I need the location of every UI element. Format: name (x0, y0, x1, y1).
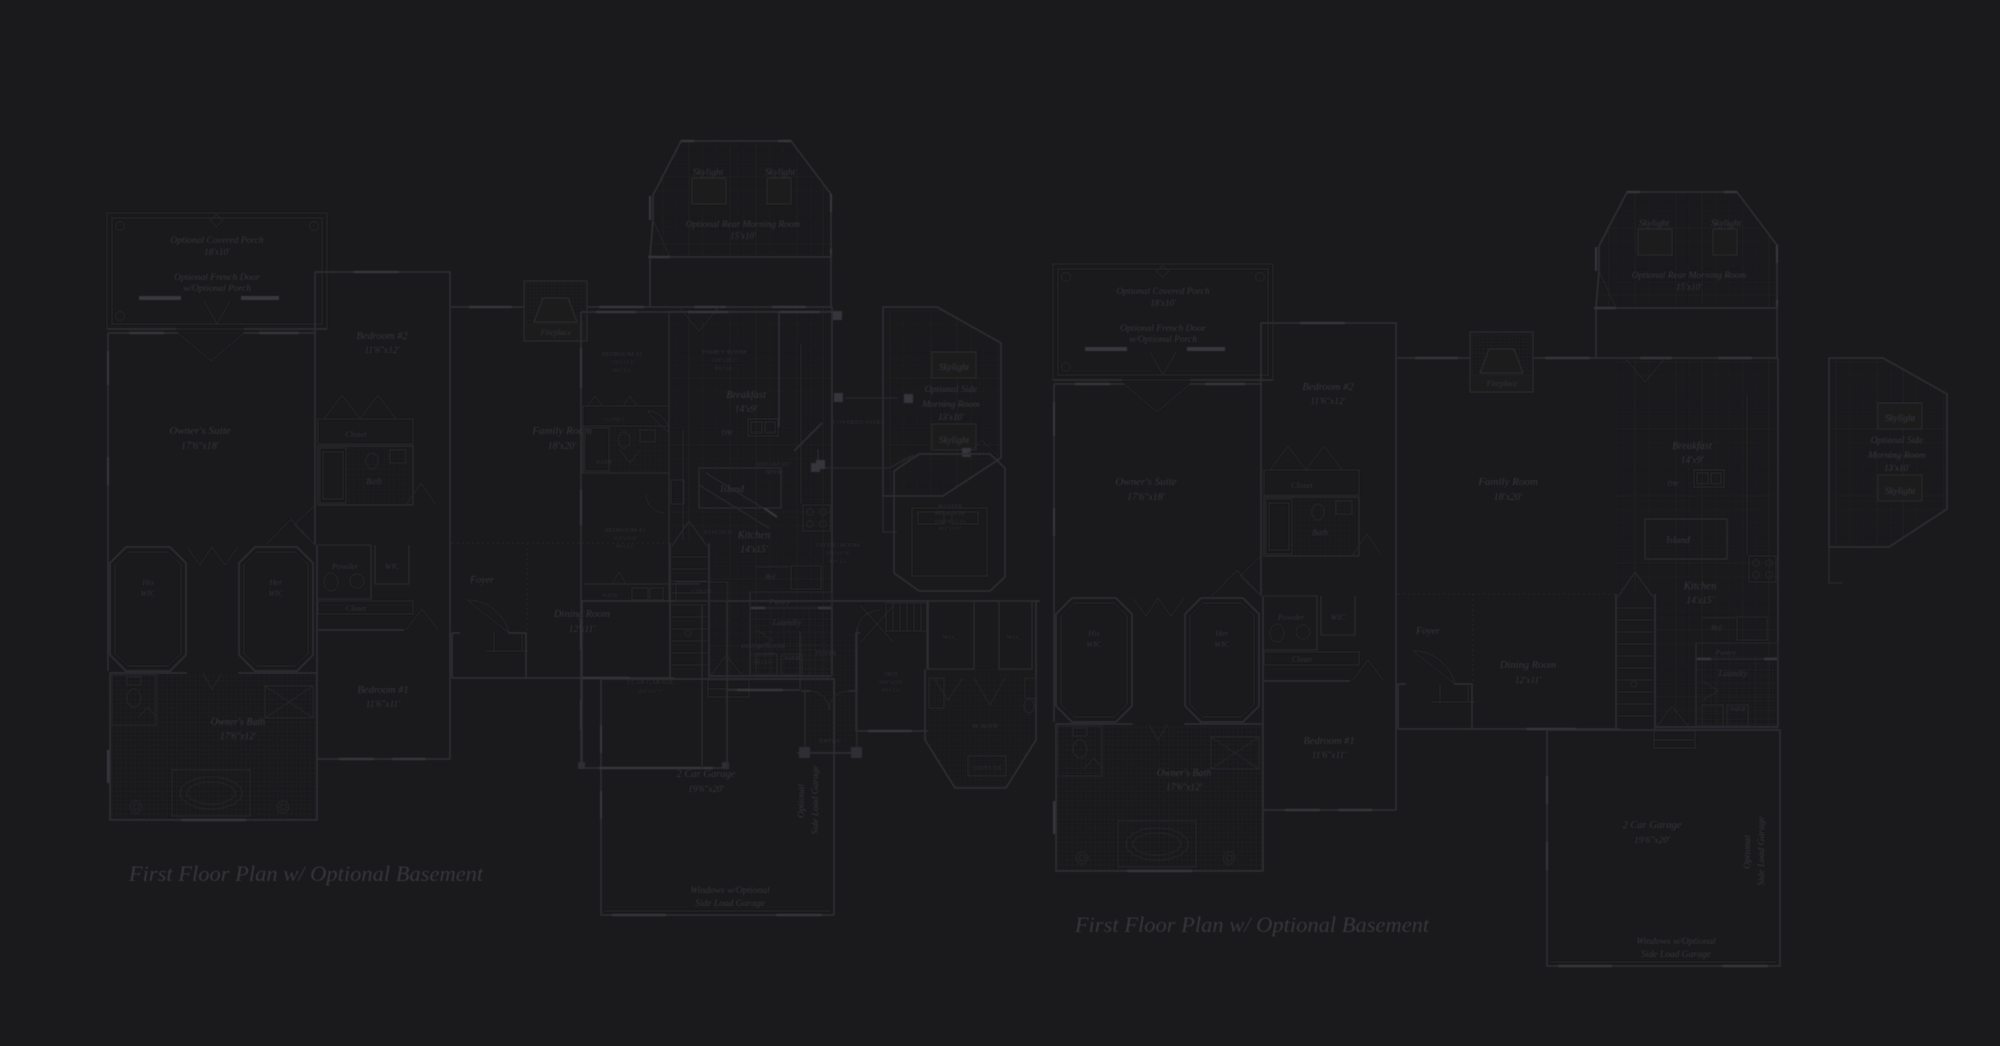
svg-text:KITCHEN: KITCHEN (704, 529, 733, 536)
svg-text:9'0 CLG: 9'0 CLG (613, 368, 632, 374)
svg-text:DINING ROOM: DINING ROOM (741, 643, 785, 650)
svg-text:NOOK: NOOK (765, 470, 783, 476)
svg-text:11'0"x13'0": 11'0"x13'0" (750, 652, 776, 658)
svg-text:9'0 CLG: 9'0 CLG (829, 559, 848, 565)
svg-text:BATH: BATH (596, 460, 612, 466)
svg-text:BEDROOM #2: BEDROOM #2 (602, 351, 643, 358)
svg-text:MASTER: MASTER (938, 504, 962, 510)
svg-text:9'0 CLG: 9'0 CLG (715, 366, 734, 372)
svg-text:LIVING ROOM: LIVING ROOM (816, 542, 860, 549)
svg-text:BATH: BATH (603, 593, 617, 599)
svg-text:10'0"x11'0": 10'0"x11'0" (878, 680, 904, 686)
svg-text:15'8"x19'2": 15'8"x19'2" (711, 358, 737, 364)
svg-text:13'2"x17'8": 13'2"x17'8" (825, 551, 851, 557)
svg-text:FOYER: FOYER (815, 650, 837, 657)
svg-text:9'0 CLG: 9'0 CLG (616, 544, 635, 550)
svg-text:DEN: DEN (884, 671, 898, 678)
svg-text:BREAKFAST: BREAKFAST (757, 462, 792, 468)
svg-text:16'4"x13'6": 16'4"x13'6" (938, 527, 961, 532)
svg-text:UTILITY: UTILITY (691, 589, 713, 595)
svg-text:9'0 CLG: 9'0 CLG (754, 660, 773, 666)
svg-text:9'0 CLG: 9'0 CLG (882, 688, 901, 694)
svg-text:20'4"x21'2": 20'4"x21'2" (637, 689, 663, 695)
svg-text:11'0"x11'6": 11'0"x11'6" (612, 536, 637, 542)
svg-text:CLOSET: CLOSET (604, 417, 625, 423)
svg-text:BEDROOM #3: BEDROOM #3 (605, 527, 646, 534)
svg-text:M. BATH: M. BATH (972, 723, 998, 730)
svg-text:2 CAR GARAGE: 2 CAR GARAGE (627, 679, 674, 686)
svg-text:COVERED PATIO: COVERED PATIO (833, 419, 883, 426)
svg-text:11'0"x12'4": 11'0"x12'4" (609, 360, 635, 366)
svg-text:GARDEN TUB: GARDEN TUB (973, 765, 1002, 770)
svg-text:ENTRY: ENTRY (819, 738, 841, 745)
svg-text:W.I.C.: W.I.C. (1006, 635, 1022, 641)
svg-text:FAMILY ROOM: FAMILY ROOM (702, 349, 747, 356)
svg-text:W.I.C.: W.I.C. (942, 635, 958, 641)
